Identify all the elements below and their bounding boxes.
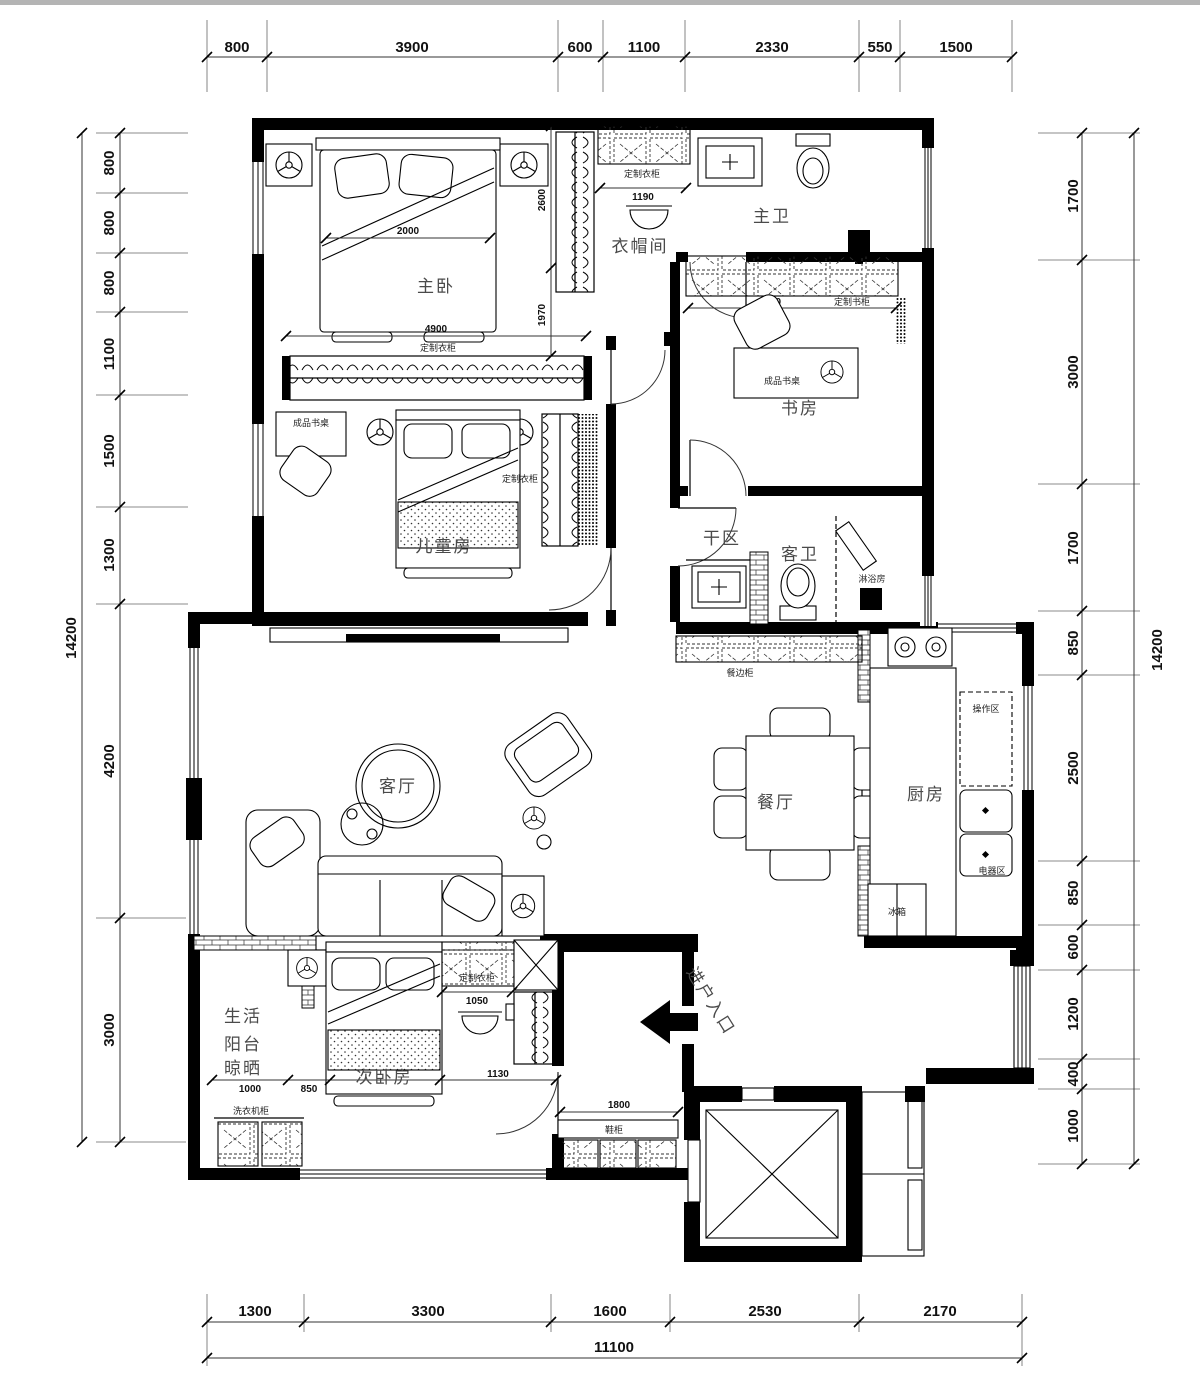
dim-right-2: 1700 (1065, 531, 1082, 564)
dim-left-6: 4200 (101, 744, 118, 777)
dim-top-3: 1100 (628, 39, 661, 56)
top-border (0, 0, 1200, 5)
dim-top-0: 800 (224, 39, 249, 56)
label-custom-wardrobe-3: 定制衣柜 (502, 473, 538, 484)
kitchen: 操作区 电器区 冰箱 厨房 (868, 628, 1012, 936)
dim-chain-bottom: 1300 3300 1600 2530 2170 11100 (202, 1294, 1027, 1366)
kids-room: 成品书桌 定制衣柜 儿童房 (276, 410, 598, 578)
label-custom-wardrobe-4: 定制衣柜 (459, 972, 495, 983)
room-label-study: 书房 (781, 399, 819, 418)
room-label-dining: 餐厅 (757, 793, 795, 812)
dim-chain-top: 800 3900 600 1100 2330 550 1500 (202, 20, 1017, 92)
living-room: 客厅 (246, 628, 596, 936)
room-label-balcony-1: 生活 (224, 1007, 262, 1026)
label-shoe-cabinet: 鞋柜 (605, 1124, 623, 1135)
room-label-balcony-3: 晾晒 (224, 1059, 262, 1078)
label-appliance-area: 电器区 (978, 865, 1005, 876)
label-custom-wardrobe-2: 定制衣柜 (624, 168, 660, 179)
elevator (684, 1086, 862, 1262)
dim-bottom-total: 11100 (594, 1339, 634, 1356)
lobby-window (926, 938, 1034, 1084)
dim-top-2: 600 (567, 39, 592, 56)
dim-chain-left: 800 800 800 1100 1500 1300 4200 3000 142… (63, 128, 188, 1147)
dining-room: 餐边柜 餐厅 (676, 636, 886, 880)
dim-seg-1000: 1000 (239, 1084, 262, 1095)
room-label-balcony-2: 阳台 (224, 1035, 262, 1054)
dim-wardrobe2-width: 1050 (466, 996, 489, 1007)
room-label-cloak: 衣帽间 (612, 237, 669, 256)
guest-bath: 客卫 淋浴房 (750, 516, 886, 624)
floor-plan-drawing: 800 3900 600 1100 2330 550 1500 1300 330… (0, 0, 1200, 1391)
dim-bottom-0: 1300 (238, 1303, 271, 1320)
dim-left-1: 800 (101, 210, 118, 235)
dim-bottom-2: 1600 (593, 1303, 626, 1320)
room-label-kids: 儿童房 (416, 537, 473, 556)
room-label-dry: 干区 (703, 529, 741, 548)
dim-top-6: 1500 (939, 39, 972, 56)
label-sideboard: 餐边柜 (726, 667, 753, 678)
stairs (862, 1086, 925, 1256)
dim-seg-1130: 1130 (487, 1069, 509, 1080)
dim-right-3: 850 (1065, 630, 1082, 655)
dim-right-6: 600 (1065, 934, 1082, 959)
dim-left-4: 1500 (101, 434, 118, 467)
label-washer-cabinet: 洗衣机柜 (233, 1105, 269, 1116)
entry-arrow-icon (640, 1000, 698, 1044)
dim-right-5: 850 (1065, 880, 1082, 905)
room-label-shower: 淋浴房 (858, 573, 885, 584)
dim-top-5: 550 (867, 39, 892, 56)
entry-area: 进户入口 鞋柜 1800 (555, 964, 739, 1168)
label-work-area: 操作区 (972, 703, 999, 714)
label-ready-desk-study: 成品书桌 (764, 375, 800, 386)
room-label-living: 客厅 (379, 777, 417, 796)
floor-plan-page: 800 3900 600 1100 2330 550 1500 1300 330… (0, 0, 1200, 1391)
dim-right-7: 1200 (1065, 997, 1082, 1030)
dim-top-4: 2330 (755, 39, 788, 56)
dim-bottom-1: 3300 (411, 1303, 444, 1320)
dim-left-3: 1100 (101, 338, 118, 371)
label-ready-desk-kids: 成品书桌 (293, 417, 329, 428)
dim-left-7: 3000 (101, 1013, 118, 1046)
master-bedroom: 2000 主卧 (266, 138, 548, 342)
dim-closet-width: 4900 (425, 324, 448, 335)
room-label-bed2: 次卧房 (356, 1068, 413, 1087)
room-label-gbath: 客卫 (781, 545, 819, 564)
dim-left-5: 1300 (101, 538, 118, 571)
dim-top-1: 3900 (395, 39, 428, 56)
dim-cloak-width: 1190 (632, 192, 654, 203)
dim-right-total: 14200 (1149, 629, 1166, 671)
dim-right-8: 400 (1065, 1061, 1082, 1086)
dim-right-0: 1700 (1065, 179, 1082, 212)
dim-left-0: 800 (101, 150, 118, 175)
dry-area: 干区 (686, 529, 754, 608)
dim-bottom-4: 2170 (923, 1303, 956, 1320)
dim-chain-right: 1700 3000 1700 850 2500 850 600 1200 400… (1038, 128, 1166, 1169)
room-label-kitchen: 厨房 (907, 785, 945, 804)
dim-right-1: 3000 (1065, 355, 1082, 388)
dim-vert-lower: 1970 (537, 303, 548, 326)
room-label-mbath: 主卫 (753, 207, 791, 226)
dim-right-9: 1000 (1065, 1109, 1082, 1142)
dim-bed-width: 2000 (397, 226, 420, 237)
label-custom-bookcase: 定制书柜 (834, 296, 870, 307)
dim-vert-upper: 2600 (537, 188, 548, 211)
room-label-master: 主卧 (417, 277, 455, 296)
study: 2800 定制书柜 成品书桌 书房 (664, 256, 906, 418)
dim-right-4: 2500 (1065, 751, 1082, 784)
master-bath: 主卫 (698, 134, 870, 264)
dim-seg-850: 850 (301, 1084, 318, 1095)
dim-left-total: 14200 (63, 617, 80, 659)
dim-shoe-width: 1800 (608, 1100, 631, 1111)
label-fridge: 冰箱 (888, 906, 906, 917)
dim-left-2: 800 (101, 270, 118, 295)
dim-bottom-3: 2530 (748, 1303, 781, 1320)
label-custom-wardrobe-1: 定制衣柜 (420, 342, 456, 353)
